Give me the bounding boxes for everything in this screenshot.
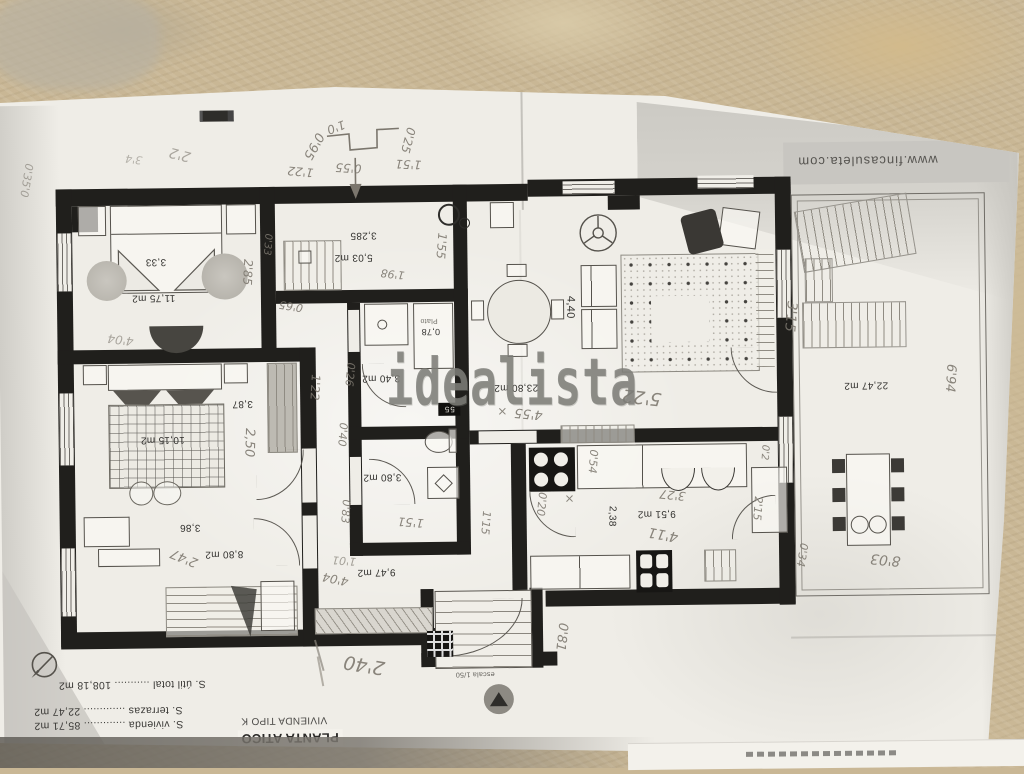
wall-kitchen-left	[511, 444, 528, 607]
nightstand	[224, 363, 248, 383]
pencil-note: 1'15	[478, 510, 493, 535]
terrace-chair	[833, 517, 846, 531]
paper-crease-horizontal	[791, 634, 1013, 639]
nightstand	[78, 206, 106, 236]
closet-inner	[298, 250, 311, 263]
closet	[283, 240, 342, 291]
dining-chair	[471, 300, 484, 320]
round-dining-table	[487, 280, 552, 345]
armchair	[718, 207, 761, 250]
wall-top-step	[608, 195, 640, 209]
table-surface-blob	[0, 0, 160, 90]
door-opening-shower	[348, 310, 360, 352]
area-label-bedroom2: 10,15 m2	[141, 434, 185, 446]
door-arc-bedroom2	[256, 450, 305, 501]
pencil-note: 3'27	[659, 487, 686, 503]
photo-background: www.fincasuleta.com	[0, 0, 1024, 768]
pencil-note: 1'51	[397, 514, 424, 530]
pencil-note: 0'35'0	[17, 163, 35, 199]
dining-chair	[507, 264, 527, 277]
boiler-small	[459, 218, 470, 229]
sun-lounger	[802, 301, 907, 348]
terrace-table	[846, 453, 891, 546]
pencil-note: 0'81	[552, 622, 570, 652]
boiler	[438, 204, 460, 226]
pencil-note: 0'2	[759, 444, 771, 460]
plate	[851, 516, 869, 534]
dim-label-bedroom2: 3,87	[232, 398, 253, 409]
legend-line-dwelling: S. vivienda ............. 85,71 m2	[34, 718, 183, 732]
kitchen-hob	[529, 447, 576, 492]
pencil-note: 3'15	[781, 301, 800, 333]
door-arc-bedroom3	[254, 518, 301, 567]
pencil-note: 2'2	[168, 144, 193, 165]
pencil-note: 2'15	[750, 496, 765, 521]
stair-direction-icon	[484, 684, 514, 714]
scan-artifact	[200, 110, 234, 121]
shower-fixture-label: Plato	[420, 317, 438, 324]
wall-study-bottom	[276, 289, 468, 304]
dim-label-living: 4,40	[564, 296, 577, 319]
pencil-note: 0'26	[342, 362, 357, 387]
plan-subheading: VIVIENDA TIPO K	[241, 714, 327, 726]
area-label-kitchen: 9,51 m2	[638, 508, 676, 519]
pencil-note: 4'04	[321, 570, 349, 589]
nightstand	[83, 365, 107, 385]
window-bedroom1	[57, 233, 72, 291]
pencil-note: 8'03	[869, 550, 901, 569]
pencil-note: 1'98	[380, 266, 405, 282]
bed-pillow-band	[108, 364, 222, 391]
nightstand	[226, 204, 256, 234]
door-opening-bedroom2	[302, 448, 317, 502]
wall-bath-bottom	[350, 542, 470, 556]
pencil-note: 4'04	[107, 331, 135, 348]
ceiling-fan-icon	[578, 213, 618, 253]
washbasin-drain	[377, 320, 387, 330]
window-bedroom3	[61, 548, 76, 616]
pencil-note: 0'54	[586, 449, 601, 474]
window-top-2	[697, 175, 753, 189]
wall-bedroom1-right	[260, 187, 277, 362]
shelf	[260, 581, 295, 631]
kitchen-island	[636, 550, 673, 592]
plate	[869, 515, 887, 533]
desk	[84, 517, 130, 548]
door-opening-bath	[350, 457, 362, 505]
edge-strip-print-smudge	[746, 750, 896, 757]
dim-label-study: 3,285	[350, 230, 377, 241]
pencil-note: 0'20	[534, 492, 549, 517]
pouf	[129, 481, 153, 505]
area-label-entry: 9,47 m2	[357, 566, 395, 577]
pencil-note: 6'94	[942, 364, 959, 393]
floor-grate	[427, 631, 453, 657]
pencil-note: 1'22	[307, 374, 322, 401]
floor-lamp	[86, 261, 126, 301]
terrace-chair	[832, 459, 845, 473]
pencil-note: 0'65	[278, 298, 304, 315]
terrace-chair	[891, 458, 904, 472]
area-label-terrace: 22,47 m2	[844, 379, 888, 391]
window-bedroom2	[59, 393, 74, 465]
throw-blanket	[680, 208, 725, 256]
pencil-note: 1'01	[332, 553, 357, 568]
terrace-chair	[891, 487, 904, 501]
pencil-note: 2'40	[342, 651, 387, 679]
dining-chair	[551, 299, 564, 319]
pencil-note: 2'47	[168, 545, 200, 570]
scale-note: escala 1/50	[455, 670, 494, 677]
kitchen-counter-bottom	[530, 555, 630, 590]
pencil-note: 0'83	[338, 499, 353, 524]
coffee-table	[651, 296, 710, 343]
sideboard	[561, 425, 635, 444]
toilet-tank	[449, 429, 457, 453]
door-opening-kitchen	[479, 431, 537, 444]
website-url: www.fincasuleta.com	[797, 153, 938, 170]
area-label-bedroom1: 11,75 m2	[132, 292, 175, 304]
legend-line-total: S. útil total ........... 108,18 m2	[59, 678, 206, 692]
pouf	[153, 481, 181, 505]
window-top-1	[563, 181, 615, 195]
bottom-shadow-band	[0, 737, 655, 768]
area-label-bedroom3: 8,80 m2	[205, 548, 243, 559]
area-label-bathroom: 3,80 m2	[363, 471, 401, 482]
north-arrow-icon	[27, 648, 61, 682]
legend-line-terraces: S. terrazas ............. 22,47 m2	[34, 704, 183, 718]
wardrobe	[267, 363, 298, 453]
pencil-note: 0'40	[335, 422, 350, 447]
sofa-seat	[581, 265, 618, 307]
terrace-chair	[832, 488, 845, 502]
area-label-study: 5,03 m2	[334, 252, 372, 263]
dim-label-kitchen: 2,38	[606, 506, 617, 527]
utility-box	[490, 202, 514, 228]
pencil-note: 0'33	[261, 233, 274, 256]
pencil-note: 2,50	[241, 428, 257, 457]
paper-edge-strip	[628, 739, 1024, 770]
pencil-note: 1'22	[287, 163, 314, 179]
pencil-note: ×	[564, 491, 574, 505]
door-opening-bedroom3	[303, 515, 318, 568]
pencil-note: 3'4	[124, 152, 143, 167]
watermark-text: idealista	[386, 344, 620, 420]
entry-threshold	[315, 607, 433, 634]
cabinet	[98, 548, 160, 567]
side-table-sketch	[804, 258, 833, 302]
pencil-note: 2'85	[240, 259, 255, 286]
dishwasher	[704, 549, 736, 581]
bed-checkered-blanket	[108, 404, 225, 489]
shower-area-label: 0,78	[421, 327, 440, 337]
pencil-note: 1'55	[433, 232, 449, 259]
terrace-chair	[892, 516, 905, 530]
dim-label-bedroom3: 3,86	[180, 522, 201, 533]
pencil-note: 4'11	[647, 524, 680, 545]
dim-label-bedroom1: 3,33	[145, 256, 166, 267]
door-arc-terrace	[731, 347, 778, 394]
